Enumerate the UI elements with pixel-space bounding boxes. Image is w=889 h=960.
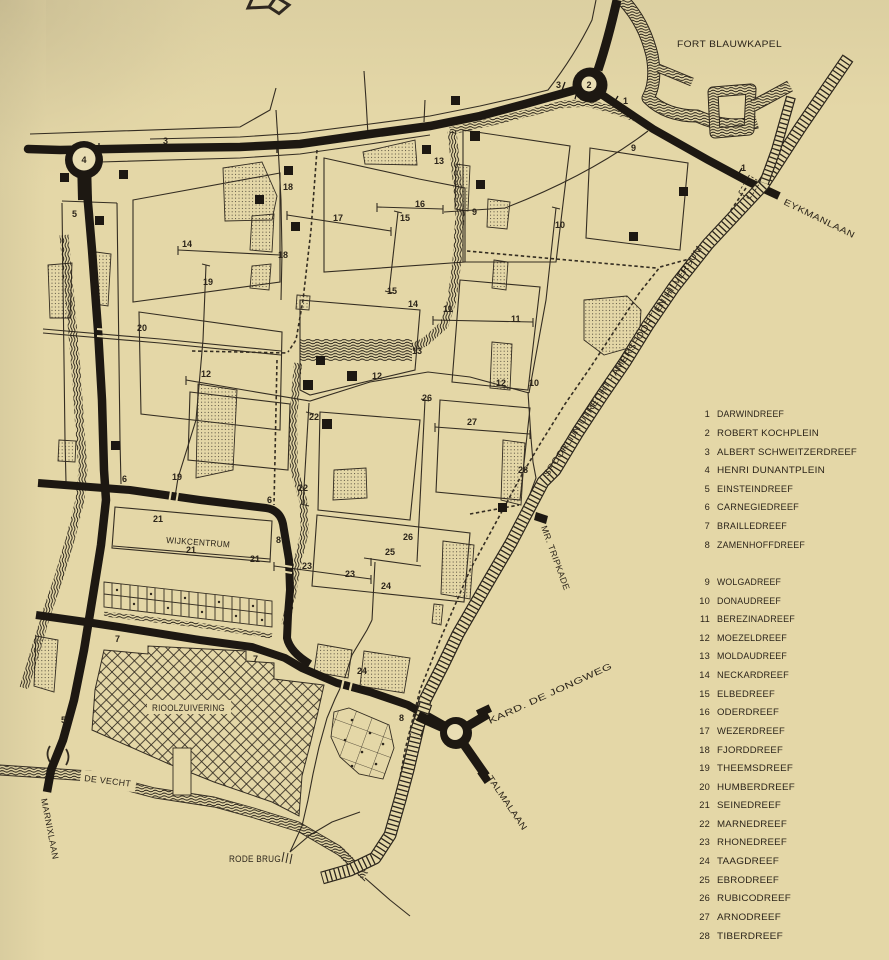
svg-text:23: 23 (302, 561, 312, 571)
svg-text:BEREZINADREEF: BEREZINADREEF (717, 614, 795, 624)
svg-text:MOLDAUDREEF: MOLDAUDREEF (717, 651, 787, 661)
svg-text:26: 26 (422, 393, 432, 403)
svg-text:18: 18 (699, 745, 710, 755)
svg-text:SEINEDREEF: SEINEDREEF (717, 800, 781, 810)
svg-text:HUMBERDREEF: HUMBERDREEF (717, 782, 795, 792)
svg-text:EINSTEINDREEF: EINSTEINDREEF (717, 484, 793, 494)
svg-text:25: 25 (385, 547, 395, 557)
svg-text:5: 5 (72, 209, 77, 219)
svg-text:ROBERT KOCHPLEIN: ROBERT KOCHPLEIN (717, 428, 819, 438)
svg-text:NECKARDREEF: NECKARDREEF (717, 670, 789, 680)
svg-text:10: 10 (555, 220, 565, 230)
svg-text:6: 6 (705, 502, 710, 512)
svg-text:15: 15 (699, 689, 710, 699)
svg-text:19: 19 (172, 472, 182, 482)
svg-text:14: 14 (699, 670, 710, 680)
svg-text:8: 8 (276, 535, 281, 545)
svg-text:10: 10 (699, 596, 710, 606)
svg-text:1: 1 (705, 409, 710, 419)
svg-text:19: 19 (203, 277, 213, 287)
svg-text:17: 17 (333, 213, 343, 223)
svg-text:ALBERT SCHWEITZERDREEF: ALBERT SCHWEITZERDREEF (717, 447, 857, 457)
svg-text:24: 24 (381, 581, 391, 591)
svg-text:23: 23 (345, 569, 355, 579)
svg-text:8: 8 (705, 540, 710, 550)
svg-text:RODE BRUG: RODE BRUG (229, 854, 281, 864)
svg-text:3: 3 (163, 136, 168, 146)
svg-text:9: 9 (705, 577, 710, 587)
svg-text:9: 9 (472, 207, 477, 217)
svg-text:RIOOLZUIVERING: RIOOLZUIVERING (152, 703, 225, 713)
svg-text:ELBEDREEF: ELBEDREEF (717, 689, 775, 699)
svg-text:22: 22 (699, 819, 710, 829)
svg-text:5: 5 (61, 715, 66, 725)
svg-text:15: 15 (387, 286, 397, 296)
svg-text:WOLGADREEF: WOLGADREEF (717, 577, 781, 587)
svg-text:7: 7 (705, 521, 710, 531)
svg-text:4: 4 (81, 155, 86, 165)
svg-text:9: 9 (631, 143, 636, 153)
svg-text:WEZERDREEF: WEZERDREEF (717, 726, 785, 736)
svg-text:12: 12 (699, 633, 710, 643)
svg-text:16: 16 (699, 707, 710, 717)
svg-text:DONAUDREEF: DONAUDREEF (717, 596, 781, 606)
svg-text:2: 2 (586, 80, 591, 90)
svg-text:26: 26 (699, 893, 710, 903)
svg-text:CARNEGIEDREEF: CARNEGIEDREEF (717, 502, 799, 512)
svg-text:24: 24 (699, 856, 710, 866)
svg-text:18: 18 (283, 182, 293, 192)
svg-text:12: 12 (201, 369, 211, 379)
svg-text:MARNEDREEF: MARNEDREEF (717, 819, 787, 829)
svg-text:FORT BLAUWKAPEL: FORT BLAUWKAPEL (677, 39, 782, 49)
svg-text:1: 1 (623, 96, 628, 106)
svg-text:3: 3 (705, 447, 710, 457)
svg-text:12: 12 (372, 371, 382, 381)
svg-text:3: 3 (556, 80, 561, 90)
svg-text:MOEZELDREEF: MOEZELDREEF (717, 633, 787, 643)
svg-text:HENRI DUNANTPLEIN: HENRI DUNANTPLEIN (717, 465, 825, 475)
svg-text:4: 4 (705, 465, 710, 475)
svg-text:14: 14 (408, 299, 418, 309)
svg-text:ODERDREEF: ODERDREEF (717, 707, 779, 717)
svg-text:22: 22 (298, 483, 308, 493)
svg-text:ARNODREEF: ARNODREEF (717, 912, 781, 922)
svg-text:THEEMSDREEF: THEEMSDREEF (717, 763, 793, 773)
svg-text:2: 2 (705, 428, 710, 438)
svg-text:21: 21 (250, 554, 260, 564)
svg-text:FJORDDREEF: FJORDDREEF (717, 745, 783, 755)
svg-text:13: 13 (412, 346, 422, 356)
svg-text:8: 8 (399, 713, 404, 723)
svg-text:5: 5 (705, 484, 710, 494)
svg-text:26: 26 (403, 532, 413, 542)
svg-text:6: 6 (267, 495, 272, 505)
svg-text:7: 7 (115, 634, 120, 644)
svg-text:14: 14 (182, 239, 192, 249)
svg-text:19: 19 (699, 763, 710, 773)
svg-text:20: 20 (699, 782, 710, 792)
svg-text:27: 27 (467, 417, 477, 427)
svg-text:RHONEDREEF: RHONEDREEF (717, 837, 787, 847)
svg-text:11: 11 (700, 614, 710, 624)
svg-text:11: 11 (511, 314, 521, 324)
svg-text:1: 1 (741, 163, 746, 173)
svg-text:23: 23 (699, 837, 710, 847)
svg-text:DARWINDREEF: DARWINDREEF (717, 409, 784, 419)
svg-text:10: 10 (529, 378, 539, 388)
svg-text:21: 21 (153, 514, 163, 524)
svg-text:6: 6 (122, 474, 127, 484)
svg-text:EBRODREEF: EBRODREEF (717, 875, 779, 885)
svg-text:22: 22 (309, 412, 319, 422)
svg-text:21: 21 (699, 800, 710, 810)
svg-text:28: 28 (699, 931, 710, 941)
svg-text:25: 25 (699, 875, 710, 885)
svg-text:ZAMENHOFFDREEF: ZAMENHOFFDREEF (717, 540, 805, 550)
svg-text:24: 24 (357, 666, 367, 676)
svg-text:7: 7 (253, 654, 258, 664)
svg-text:18: 18 (278, 250, 288, 260)
svg-text:RUBICODREEF: RUBICODREEF (717, 893, 791, 903)
svg-text:12: 12 (496, 378, 506, 388)
svg-text:17: 17 (699, 726, 710, 736)
svg-text:TIBERDREEF: TIBERDREEF (717, 931, 783, 941)
svg-text:15: 15 (400, 213, 410, 223)
svg-text:BRAILLEDREEF: BRAILLEDREEF (717, 521, 787, 531)
svg-text:TAAGDREEF: TAAGDREEF (717, 856, 779, 866)
svg-text:16: 16 (415, 199, 425, 209)
svg-text:28: 28 (518, 465, 528, 475)
svg-text:13: 13 (434, 156, 444, 166)
svg-text:27: 27 (699, 912, 710, 922)
svg-text:20: 20 (137, 323, 147, 333)
svg-text:11: 11 (443, 304, 453, 314)
svg-text:21: 21 (186, 545, 196, 555)
svg-text:13: 13 (699, 651, 710, 661)
